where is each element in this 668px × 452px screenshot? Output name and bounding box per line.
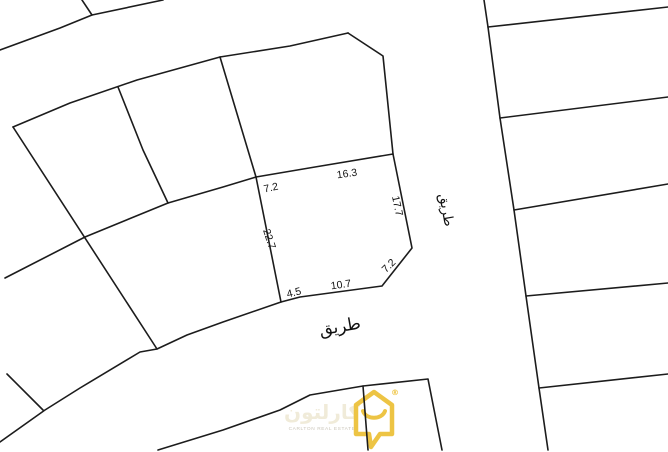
parcel-division-line <box>539 374 668 388</box>
measurement-top-left-edge: 7.2 <box>263 181 280 196</box>
survey-map-canvas: كارلتون CARLTON REAL ESTATE ® <box>0 0 668 452</box>
inner-curved-boundary-line <box>5 177 256 278</box>
horizontal-road-label: طريق <box>318 314 363 341</box>
parcel-division-line <box>500 97 668 118</box>
block-top-boundary-line <box>13 33 348 127</box>
road-north-edge-line <box>0 0 163 50</box>
vertical-road-label: طريق <box>435 192 457 227</box>
measurement-labels: 7.2 16.3 17.7 22.7 7.2 10.7 4.5 <box>260 167 405 301</box>
parcel-division-line <box>82 0 92 15</box>
parcel-division-line <box>118 87 168 203</box>
parcel-division-line <box>7 374 43 410</box>
boundary-lines <box>0 0 668 450</box>
watermark-logo: كارلتون CARLTON REAL ESTATE ® <box>284 388 399 447</box>
smile-mark <box>363 411 385 418</box>
measurement-corner-cut: 7.2 <box>380 256 399 275</box>
parcel-division-line <box>514 184 668 210</box>
parcel-division-line <box>220 57 256 177</box>
measurement-top-edge: 16.3 <box>336 167 358 182</box>
measurement-left-edge: 22.7 <box>260 227 278 250</box>
watermark-english-text: CARLTON REAL ESTATE <box>289 426 356 432</box>
parcel-division-line <box>526 283 668 296</box>
house-chat-bubble-icon <box>356 392 392 447</box>
parcel-division-line <box>13 127 157 349</box>
watermark-arabic-text: كارلتون <box>284 400 360 424</box>
vertical-road-east-edge-line <box>484 0 548 450</box>
cadastral-map: كارلتون CARLTON REAL ESTATE ® <box>0 0 668 452</box>
parcel-division-line <box>488 7 668 27</box>
vertical-road-west-edge-line <box>348 33 393 154</box>
registered-trademark-symbol: ® <box>391 388 399 397</box>
measurement-bottom-left-edge: 4.5 <box>285 285 302 300</box>
